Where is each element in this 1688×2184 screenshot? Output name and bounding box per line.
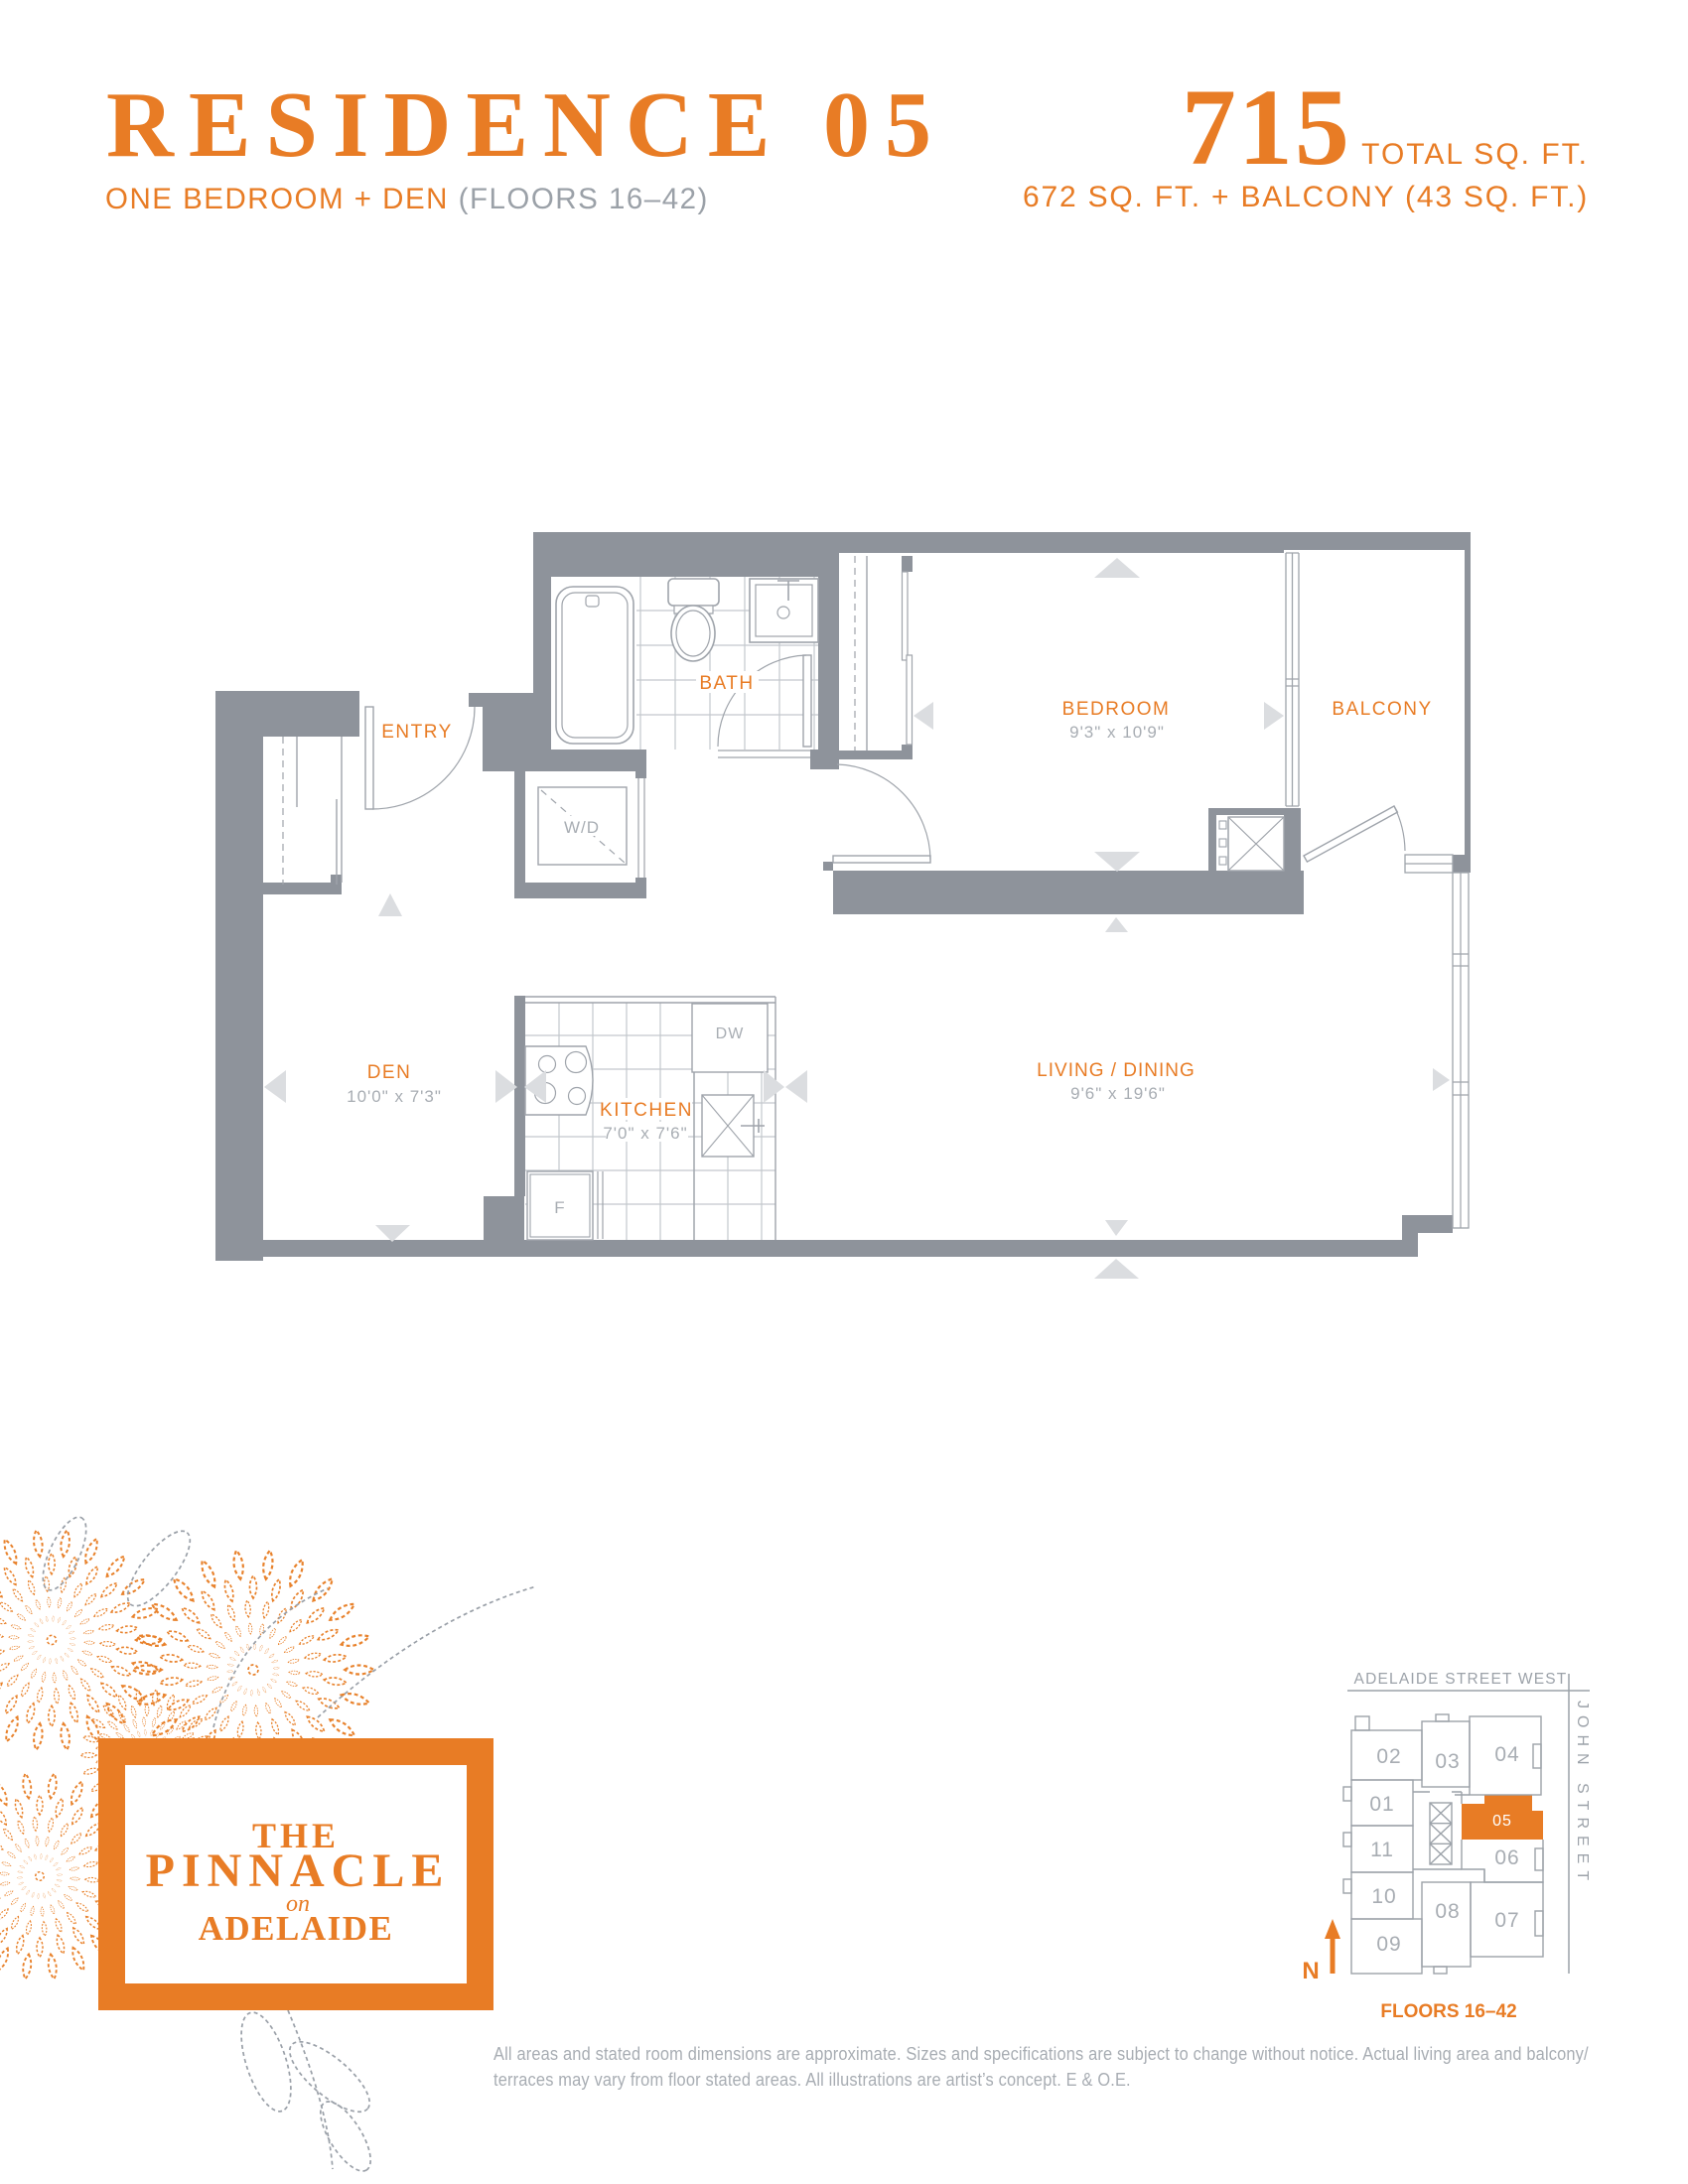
svg-text:LIVING / DINING: LIVING / DINING <box>1037 1060 1196 1081</box>
svg-text:11: 11 <box>1370 1839 1394 1861</box>
svg-text:W/D: W/D <box>564 818 600 837</box>
svg-text:BEDROOM: BEDROOM <box>1062 699 1171 720</box>
svg-text:10: 10 <box>1371 1885 1396 1908</box>
svg-text:06: 06 <box>1494 1846 1519 1869</box>
svg-text:F: F <box>554 1198 565 1217</box>
svg-text:DEN: DEN <box>367 1062 412 1083</box>
svg-text:01: 01 <box>1369 1793 1394 1816</box>
svg-text:N: N <box>1302 1958 1319 1984</box>
svg-text:DW: DW <box>716 1025 745 1042</box>
svg-text:05: 05 <box>1492 1813 1512 1830</box>
svg-text:03: 03 <box>1435 1750 1460 1773</box>
svg-text:08: 08 <box>1435 1900 1460 1923</box>
svg-text:BALCONY: BALCONY <box>1332 699 1432 720</box>
svg-text:JOHN STREET: JOHN STREET <box>1574 1701 1591 1887</box>
svg-text:10'0" x 7'3": 10'0" x 7'3" <box>347 1087 442 1106</box>
svg-text:ADELAIDE STREET WEST: ADELAIDE STREET WEST <box>1354 1671 1568 1688</box>
svg-text:KITCHEN: KITCHEN <box>600 1100 693 1121</box>
svg-text:ENTRY: ENTRY <box>381 722 453 743</box>
svg-text:BATH: BATH <box>699 673 754 694</box>
svg-text:07: 07 <box>1494 1909 1519 1932</box>
svg-text:04: 04 <box>1494 1743 1519 1766</box>
svg-text:7'0" x 7'6": 7'0" x 7'6" <box>603 1124 687 1143</box>
svg-text:9'3" x 10'9": 9'3" x 10'9" <box>1069 723 1165 742</box>
svg-text:02: 02 <box>1376 1745 1401 1768</box>
svg-text:ADELAIDE: ADELAIDE <box>199 1909 394 1948</box>
svg-text:FLOORS 16–42: FLOORS 16–42 <box>1380 2001 1516 2022</box>
svg-text:09: 09 <box>1376 1933 1401 1956</box>
svg-text:9'6" x 19'6": 9'6" x 19'6" <box>1070 1084 1166 1103</box>
svg-text:PINNACLE: PINNACLE <box>146 1844 451 1897</box>
